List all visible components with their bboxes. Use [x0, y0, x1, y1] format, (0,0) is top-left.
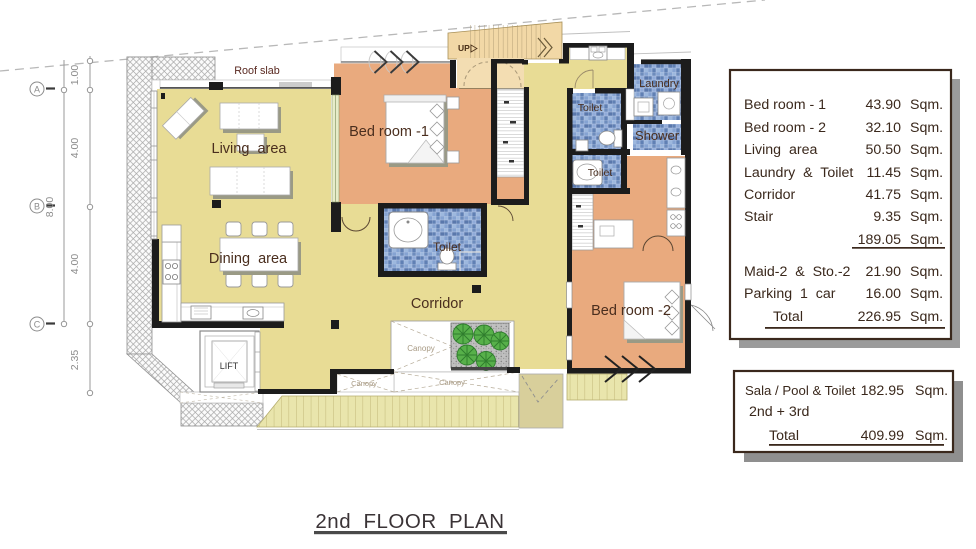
svg-text:Bed room - 2: Bed room - 2: [744, 120, 826, 136]
svg-text:Sqm.: Sqm.: [910, 97, 943, 113]
svg-text:41.75: 41.75: [865, 187, 901, 203]
svg-text:LIFT: LIFT: [220, 361, 239, 371]
svg-text:2nd FLOOR PLAN: 2nd FLOOR PLAN: [315, 510, 504, 533]
svg-text:Laundry & Toilet: Laundry & Toilet: [744, 165, 853, 181]
svg-text:A: A: [34, 85, 40, 95]
svg-text:4.00: 4.00: [69, 254, 81, 275]
svg-text:Corridor: Corridor: [744, 187, 796, 203]
svg-text:9.35: 9.35: [873, 209, 901, 225]
svg-text:Total: Total: [769, 428, 799, 444]
svg-text:Sqm.: Sqm.: [910, 309, 943, 325]
svg-text:1.00: 1.00: [69, 65, 81, 86]
svg-text:Living area: Living area: [744, 142, 817, 158]
svg-text:2nd + 3rd: 2nd + 3rd: [749, 404, 809, 420]
svg-text:B: B: [34, 202, 40, 212]
svg-text:UP: UP: [458, 43, 470, 53]
svg-text:Sqm.: Sqm.: [910, 264, 943, 280]
svg-text:43.90: 43.90: [865, 97, 901, 113]
svg-text:Sqm.: Sqm.: [910, 187, 943, 203]
svg-text:Bed room -1: Bed room -1: [349, 124, 429, 140]
svg-text:C: C: [34, 320, 41, 330]
svg-text:Parking 1 car: Parking 1 car: [744, 286, 836, 302]
svg-text:Bed room -2: Bed room -2: [591, 303, 671, 319]
svg-text:Canopy: Canopy: [439, 378, 465, 387]
svg-text:50.50: 50.50: [865, 142, 901, 158]
svg-text:8.00: 8.00: [44, 197, 56, 218]
svg-text:Sqm.: Sqm.: [910, 120, 943, 136]
svg-text:Canopy: Canopy: [351, 379, 377, 388]
svg-text:4.00: 4.00: [69, 138, 81, 159]
svg-text:226.95: 226.95: [858, 309, 902, 325]
svg-text:Toilet: Toilet: [588, 167, 613, 179]
svg-text:Shower: Shower: [635, 128, 680, 143]
svg-text:Laundry: Laundry: [639, 78, 679, 90]
svg-text:2.35: 2.35: [69, 350, 81, 371]
svg-text:Corridor: Corridor: [411, 296, 464, 312]
svg-text:32.10: 32.10: [865, 120, 901, 136]
svg-text:Roof slab: Roof slab: [234, 65, 280, 77]
svg-text:Dining area: Dining area: [209, 251, 288, 267]
svg-text:Sqm.: Sqm.: [910, 232, 943, 248]
svg-text:21.90: 21.90: [865, 264, 901, 280]
svg-text:Toilet: Toilet: [433, 240, 462, 254]
svg-text:Stair: Stair: [744, 209, 773, 225]
svg-text:Bed room - 1: Bed room - 1: [744, 97, 826, 113]
svg-text:182.95: 182.95: [861, 383, 905, 399]
svg-text:Sqm.: Sqm.: [910, 209, 943, 225]
svg-text:Living area: Living area: [212, 141, 288, 157]
svg-text:Sqm.: Sqm.: [915, 383, 948, 399]
svg-text:16.00: 16.00: [865, 286, 901, 302]
svg-text:Total: Total: [773, 309, 803, 325]
svg-text:Maid-2 & Sto.-2: Maid-2 & Sto.-2: [744, 264, 851, 280]
svg-text:189.05: 189.05: [858, 232, 902, 248]
svg-text:11.45: 11.45: [867, 165, 902, 181]
svg-text:Sqm.: Sqm.: [910, 165, 943, 181]
svg-text:Sala / Pool & Toilet: Sala / Pool & Toilet: [745, 383, 856, 398]
svg-text:Sqm.: Sqm.: [910, 142, 943, 158]
svg-text:409.99: 409.99: [861, 428, 905, 444]
svg-text:Canopy: Canopy: [407, 344, 435, 353]
svg-text:Sqm.: Sqm.: [915, 428, 948, 444]
svg-text:Toilet: Toilet: [578, 102, 603, 114]
svg-text:Sqm.: Sqm.: [910, 286, 943, 302]
